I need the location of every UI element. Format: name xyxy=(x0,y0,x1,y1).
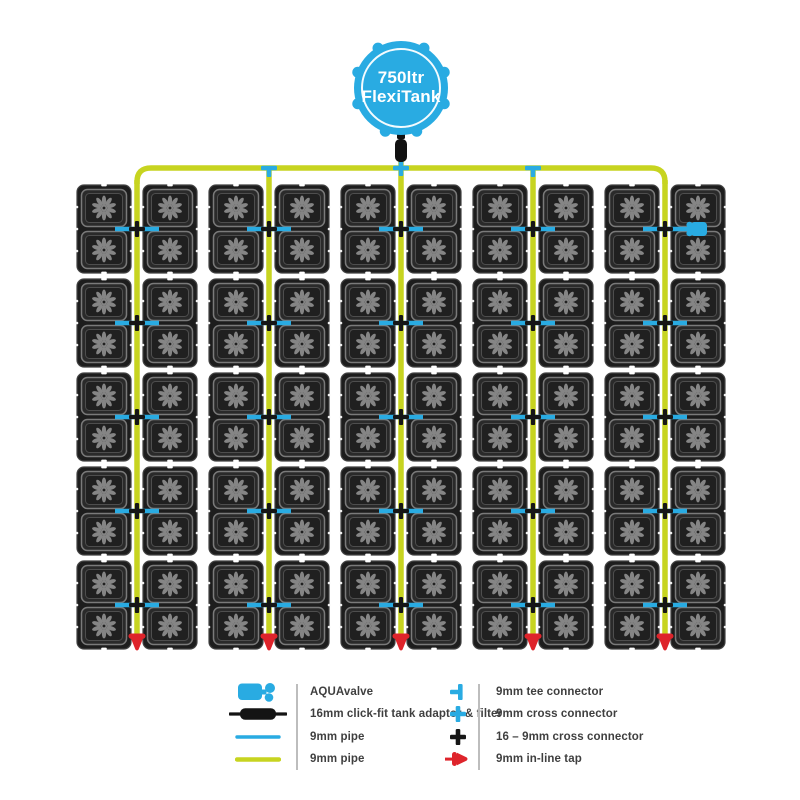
plant-pot xyxy=(280,566,325,603)
plant-pot xyxy=(544,608,589,645)
plant-pot xyxy=(214,608,259,645)
plant-pot xyxy=(544,420,589,457)
plant-pot xyxy=(148,326,193,363)
cross-connector-16-9-icon xyxy=(432,728,484,746)
plant-pot xyxy=(676,284,721,321)
legend-item-label: 9mm pipe xyxy=(310,731,364,743)
plant-pot xyxy=(280,514,325,551)
plant-pot xyxy=(346,326,391,363)
plant-pot xyxy=(148,378,193,415)
plant-pot xyxy=(148,608,193,645)
legend-divider xyxy=(296,684,298,770)
plant-pot xyxy=(148,232,193,269)
legend-item-label: 9mm pipe xyxy=(310,753,364,765)
plant-pot xyxy=(148,284,193,321)
plant-pot xyxy=(82,420,127,457)
plant-pot xyxy=(412,566,457,603)
plant-pot xyxy=(412,608,457,645)
irrigation-diagram-canvas xyxy=(0,0,800,800)
legend-item: 9mm pipe xyxy=(226,748,460,770)
plant-pot xyxy=(346,284,391,321)
plant-pot xyxy=(214,232,259,269)
legend-left-column: AQUAvalve 16mm click-fit tank adaptor & … xyxy=(226,681,460,770)
plant-pot xyxy=(82,514,127,551)
plant-pot xyxy=(82,326,127,363)
plant-pot xyxy=(280,284,325,321)
plant-pot xyxy=(412,378,457,415)
legend-item: 9mm in-line tap xyxy=(432,748,666,770)
plant-pot xyxy=(82,284,127,321)
plant-pot xyxy=(82,608,127,645)
plant-pot xyxy=(544,284,589,321)
plant-pot xyxy=(478,566,523,603)
cross-connector-icon xyxy=(432,705,484,723)
legend-item: 9mm pipe xyxy=(226,726,460,748)
flexitank-label: 750ltr FlexiTank xyxy=(331,69,471,106)
plant-pot xyxy=(82,472,127,509)
plant-pot xyxy=(346,190,391,227)
plant-pot xyxy=(544,378,589,415)
aquavalve-icon xyxy=(226,680,290,704)
plant-pot xyxy=(82,232,127,269)
tee-connector-icon xyxy=(432,683,484,701)
plant-pot xyxy=(280,472,325,509)
tank-name-text: FlexiTank xyxy=(331,88,471,107)
plant-pot xyxy=(610,608,655,645)
plant-pot xyxy=(676,326,721,363)
plant-pot xyxy=(412,326,457,363)
plant-pot xyxy=(676,190,721,227)
legend-item: 9mm cross connector xyxy=(432,703,666,725)
plant-pot xyxy=(280,232,325,269)
legend-item-label: 9mm in-line tap xyxy=(496,753,582,765)
plant-pot xyxy=(148,472,193,509)
plant-pot xyxy=(346,514,391,551)
legend-divider xyxy=(478,684,480,770)
plant-pot xyxy=(214,190,259,227)
plant-pot xyxy=(412,232,457,269)
plant-pot xyxy=(544,190,589,227)
plant-pot xyxy=(544,472,589,509)
cross-connector xyxy=(393,160,409,176)
tee-connector xyxy=(261,166,277,177)
plant-pot xyxy=(346,472,391,509)
plant-pot xyxy=(148,514,193,551)
plant-pot xyxy=(280,190,325,227)
plant-pot xyxy=(478,514,523,551)
plant-pot xyxy=(544,566,589,603)
plant-pot xyxy=(676,566,721,603)
plant-pot xyxy=(280,420,325,457)
tee-connector xyxy=(525,166,541,177)
plant-pot xyxy=(610,284,655,321)
plant-pot xyxy=(610,190,655,227)
plant-pot xyxy=(478,472,523,509)
plant-pot xyxy=(412,190,457,227)
plant-pot xyxy=(412,284,457,321)
plant-pot xyxy=(346,608,391,645)
plant-pot xyxy=(544,232,589,269)
plant-pot xyxy=(610,378,655,415)
plant-pot xyxy=(676,514,721,551)
plant-pot xyxy=(478,608,523,645)
plant-pot xyxy=(478,284,523,321)
plant-pot xyxy=(610,566,655,603)
plant-pot xyxy=(676,608,721,645)
plant-pot xyxy=(346,378,391,415)
plant-pot xyxy=(346,566,391,603)
plant-pot xyxy=(148,566,193,603)
blue-pipe-icon xyxy=(226,733,290,741)
legend-item: 9mm tee connector xyxy=(432,681,666,703)
legend-item-label: 16 – 9mm cross connector xyxy=(496,731,644,743)
legend-item-label: 9mm tee connector xyxy=(496,686,603,698)
plant-pot xyxy=(610,514,655,551)
plant-pot xyxy=(214,566,259,603)
legend-item-label: 9mm cross connector xyxy=(496,708,617,720)
plant-pot xyxy=(610,232,655,269)
plant-pot xyxy=(676,232,721,269)
tank-capacity-text: 750ltr xyxy=(331,69,471,88)
aquavalve-unit xyxy=(686,222,707,237)
plant-pot xyxy=(478,326,523,363)
plant-pot xyxy=(280,326,325,363)
plant-pot xyxy=(214,326,259,363)
plant-pot xyxy=(676,378,721,415)
plant-pot xyxy=(412,514,457,551)
autopot-system-diagram: 750ltr FlexiTank AQUAvalve xyxy=(0,0,800,800)
plant-pot xyxy=(82,190,127,227)
inline-tap-icon xyxy=(432,750,484,768)
plant-pot xyxy=(148,190,193,227)
plant-pot xyxy=(214,284,259,321)
plant-pot xyxy=(214,472,259,509)
plant-pot xyxy=(280,608,325,645)
legend-item: AQUAvalve xyxy=(226,681,460,703)
plant-pot xyxy=(82,566,127,603)
plant-pot xyxy=(346,420,391,457)
plant-pot xyxy=(412,472,457,509)
plant-pot xyxy=(676,420,721,457)
yellow-pipe-icon xyxy=(226,755,290,764)
legend-right-column: 9mm tee connector 9mm cross connector 16… xyxy=(432,681,666,770)
plant-pot xyxy=(412,420,457,457)
plant-pot xyxy=(676,472,721,509)
plant-pot xyxy=(610,472,655,509)
plant-pot xyxy=(478,378,523,415)
plant-pot xyxy=(478,420,523,457)
plant-pot xyxy=(478,190,523,227)
plant-pot xyxy=(82,378,127,415)
legend-item: 16 – 9mm cross connector xyxy=(432,726,666,748)
legend-item-label: AQUAvalve xyxy=(310,686,373,698)
plant-pot xyxy=(478,232,523,269)
plant-pot xyxy=(148,420,193,457)
plant-pot xyxy=(610,326,655,363)
plant-pot xyxy=(214,420,259,457)
plant-pot xyxy=(280,378,325,415)
legend-item: 16mm click-fit tank adaptor & filter xyxy=(226,703,460,725)
plant-pot xyxy=(346,232,391,269)
plant-pot xyxy=(610,420,655,457)
plant-pot xyxy=(214,378,259,415)
plant-pot xyxy=(544,326,589,363)
plant-pot xyxy=(214,514,259,551)
tank-adaptor-icon xyxy=(226,705,290,723)
plant-pot xyxy=(544,514,589,551)
